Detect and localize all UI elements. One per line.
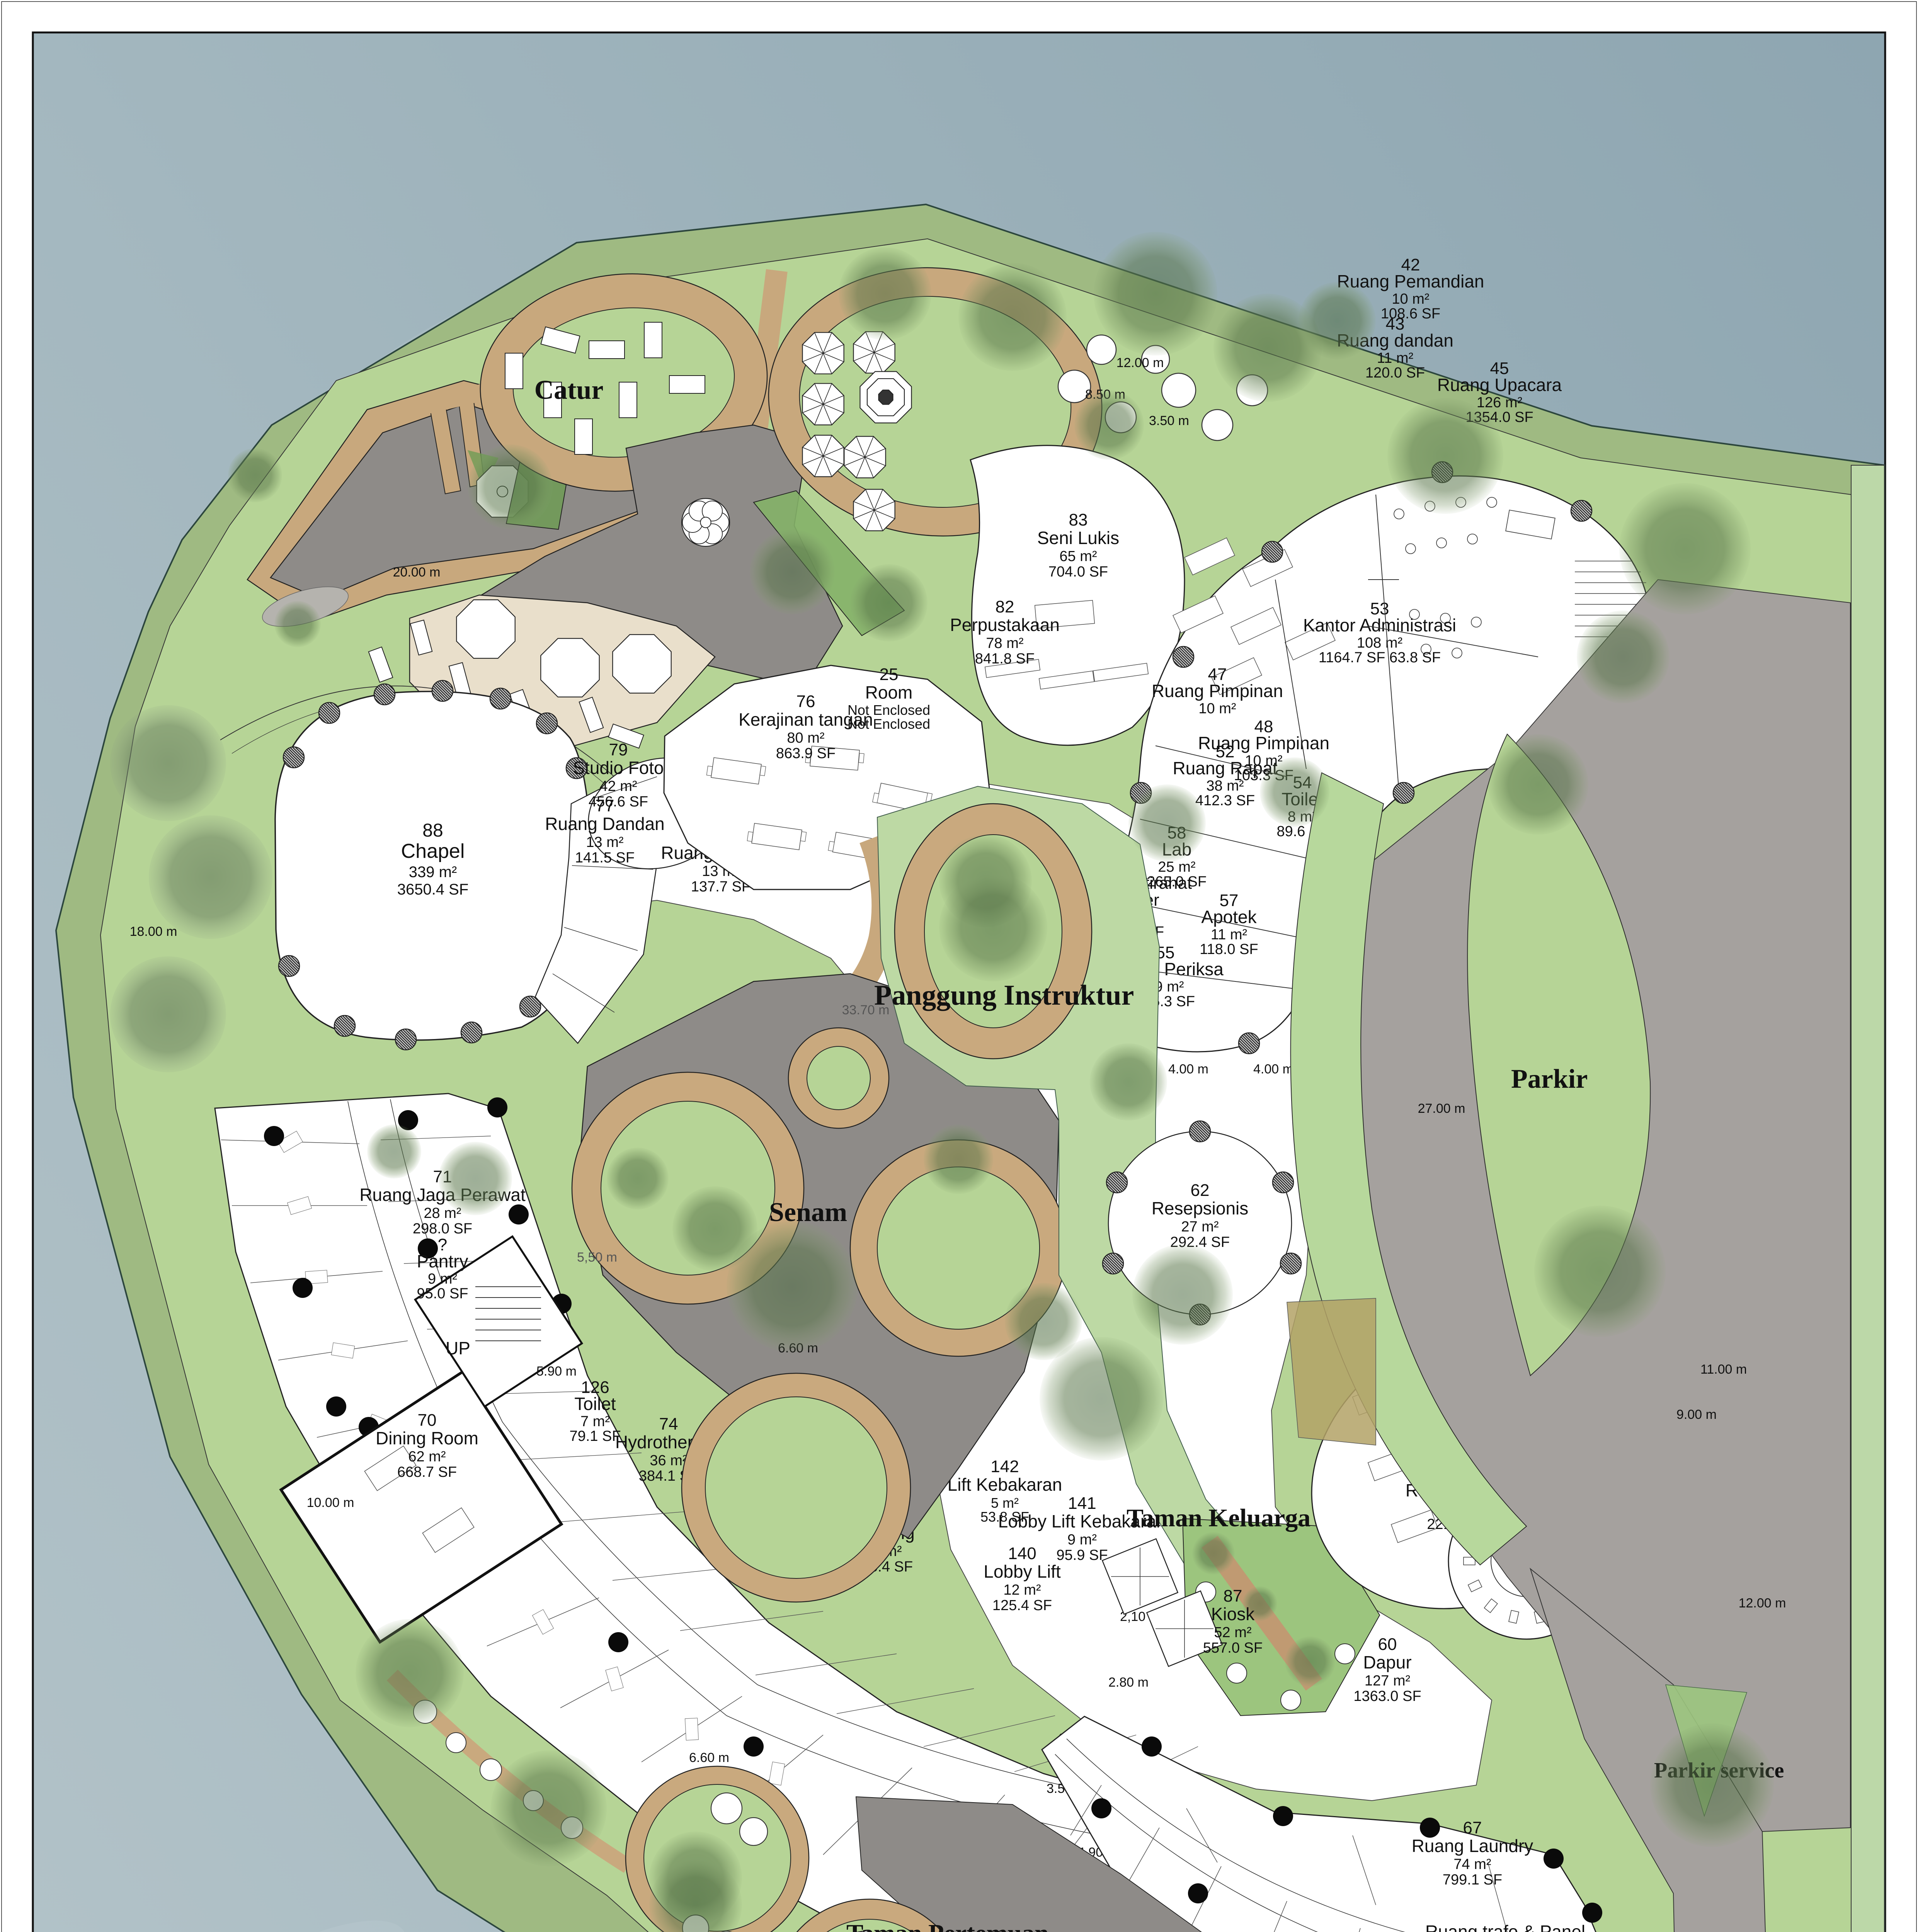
svg-text:Apotek: Apotek bbox=[1201, 907, 1257, 927]
svg-text:Kantor Administrasi: Kantor Administrasi bbox=[1303, 615, 1456, 635]
svg-text:Resepsionis: Resepsionis bbox=[1152, 1198, 1249, 1218]
svg-text:Ruang Rapat: Ruang Rapat bbox=[1173, 758, 1277, 778]
svg-text:2.80 m: 2.80 m bbox=[1108, 1675, 1149, 1690]
svg-text:11.00 m: 11.00 m bbox=[1700, 1362, 1747, 1377]
svg-text:88: 88 bbox=[422, 820, 443, 841]
svg-text:298.0 SF: 298.0 SF bbox=[413, 1221, 472, 1237]
svg-text:Ruang Dandan: Ruang Dandan bbox=[545, 814, 664, 834]
svg-text:65 m²: 65 m² bbox=[1059, 548, 1097, 565]
svg-text:27 m²: 27 m² bbox=[1181, 1219, 1219, 1235]
svg-text:9 m²: 9 m² bbox=[1067, 1532, 1097, 1548]
svg-text:12 m²: 12 m² bbox=[1003, 1582, 1041, 1598]
svg-text:Ruang Laundry: Ruang Laundry bbox=[1412, 1836, 1533, 1856]
svg-text:412.3 SF: 412.3 SF bbox=[1195, 793, 1255, 809]
svg-text:83: 83 bbox=[1069, 510, 1088, 529]
svg-text:668.7 SF: 668.7 SF bbox=[397, 1464, 457, 1480]
svg-text:10 m²: 10 m² bbox=[1198, 701, 1236, 717]
svg-text:Lift Kebakaran: Lift Kebakaran bbox=[948, 1475, 1062, 1495]
svg-text:42 m²: 42 m² bbox=[599, 778, 637, 794]
svg-text:79: 79 bbox=[609, 740, 628, 759]
svg-text:18.00 m: 18.00 m bbox=[130, 924, 177, 939]
svg-text:Dapur: Dapur bbox=[1363, 1652, 1411, 1672]
svg-text:87: 87 bbox=[1224, 1587, 1242, 1605]
svg-text:Ruang Pimpinan: Ruang Pimpinan bbox=[1152, 681, 1283, 701]
svg-text:Kiosk: Kiosk bbox=[1211, 1604, 1255, 1624]
svg-text:74 m²: 74 m² bbox=[1453, 1856, 1491, 1872]
svg-text:12.00 m: 12.00 m bbox=[1116, 355, 1164, 370]
svg-text:Lobby Lift: Lobby Lift bbox=[984, 1561, 1061, 1582]
svg-text:125.4 SF: 125.4 SF bbox=[992, 1597, 1052, 1614]
svg-text:13 m²: 13 m² bbox=[586, 834, 623, 850]
svg-text:38 m²: 38 m² bbox=[1206, 778, 1244, 794]
svg-text:11 m²: 11 m² bbox=[1377, 350, 1413, 366]
svg-text:9 m²: 9 m² bbox=[428, 1271, 457, 1287]
svg-text:52 m²: 52 m² bbox=[1214, 1624, 1251, 1641]
svg-text:67: 67 bbox=[1463, 1818, 1482, 1837]
svg-text:7 m²: 7 m² bbox=[580, 1413, 610, 1430]
svg-text:25: 25 bbox=[880, 665, 899, 684]
svg-text:62: 62 bbox=[1191, 1181, 1210, 1200]
svg-text:Perpustakaan: Perpustakaan bbox=[950, 615, 1060, 635]
svg-text:108 m²: 108 m² bbox=[1357, 635, 1402, 651]
svg-text:10.00 m: 10.00 m bbox=[307, 1495, 354, 1510]
svg-text:95.0 SF: 95.0 SF bbox=[417, 1286, 468, 1302]
svg-text:Ruang Pemandian: Ruang Pemandian bbox=[1337, 271, 1484, 291]
svg-text:6.60 m: 6.60 m bbox=[689, 1750, 729, 1765]
svg-text:3650.4 SF: 3650.4 SF bbox=[397, 881, 469, 898]
svg-text:Not Enclosed: Not Enclosed bbox=[848, 716, 930, 732]
svg-text:Ruang Upacara: Ruang Upacara bbox=[1437, 375, 1562, 395]
svg-text:841.8 SF: 841.8 SF bbox=[975, 651, 1035, 667]
svg-text:Studio Foto: Studio Foto bbox=[573, 758, 664, 778]
svg-text:9.00 m: 9.00 m bbox=[1676, 1407, 1717, 1422]
svg-text:142: 142 bbox=[990, 1457, 1019, 1476]
svg-text:557.0 SF: 557.0 SF bbox=[1203, 1640, 1263, 1656]
svg-text:Pantry: Pantry bbox=[417, 1251, 468, 1271]
svg-text:27.00 m: 27.00 m bbox=[1418, 1101, 1465, 1116]
svg-text:799.1 SF: 799.1 SF bbox=[1443, 1872, 1502, 1888]
svg-text:863.9 SF: 863.9 SF bbox=[776, 745, 836, 762]
svg-text:Room: Room bbox=[865, 682, 913, 702]
svg-text:339 m²: 339 m² bbox=[409, 864, 457, 881]
svg-text:70: 70 bbox=[418, 1411, 437, 1430]
svg-text:140: 140 bbox=[1008, 1544, 1036, 1563]
svg-text:127 m²: 127 m² bbox=[1365, 1673, 1410, 1689]
svg-text:1164.7 SF 63.8 SF: 1164.7 SF 63.8 SF bbox=[1319, 650, 1441, 666]
svg-text:Catur: Catur bbox=[534, 375, 604, 405]
svg-text:Taman Keluarga: Taman Keluarga bbox=[1127, 1504, 1310, 1532]
svg-text:Not Enclosed: Not Enclosed bbox=[848, 702, 930, 718]
svg-text:4.00 m: 4.00 m bbox=[1168, 1062, 1208, 1077]
svg-text:Parkir: Parkir bbox=[1511, 1064, 1588, 1094]
svg-text:Ruang trafo & Panel: Ruang trafo & Panel bbox=[1425, 1922, 1585, 1932]
svg-text:36 m²: 36 m² bbox=[650, 1452, 687, 1469]
svg-text:126 m²: 126 m² bbox=[1477, 395, 1522, 411]
svg-text:76: 76 bbox=[796, 692, 815, 711]
svg-text:141.5 SF: 141.5 SF bbox=[575, 850, 635, 866]
svg-text:Chapel: Chapel bbox=[401, 840, 465, 862]
svg-text:80 m²: 80 m² bbox=[787, 730, 824, 746]
svg-text:118.0 SF: 118.0 SF bbox=[1200, 941, 1258, 957]
svg-text:79.1 SF: 79.1 SF bbox=[569, 1428, 621, 1444]
svg-text:74: 74 bbox=[659, 1415, 678, 1434]
svg-text:12.00 m: 12.00 m bbox=[1739, 1596, 1786, 1611]
svg-text:11 m²: 11 m² bbox=[1211, 927, 1247, 943]
svg-text:95.9 SF: 95.9 SF bbox=[1056, 1547, 1108, 1563]
svg-text:Toilet: Toilet bbox=[574, 1394, 616, 1414]
svg-text:5 m²: 5 m² bbox=[991, 1495, 1019, 1511]
svg-text:20.00 m: 20.00 m bbox=[393, 565, 441, 580]
svg-text:141: 141 bbox=[1068, 1494, 1096, 1513]
svg-text:77: 77 bbox=[596, 796, 614, 815]
svg-text:5.90 m: 5.90 m bbox=[536, 1364, 577, 1379]
svg-text:704.0 SF: 704.0 SF bbox=[1048, 564, 1108, 580]
svg-text:60: 60 bbox=[1378, 1635, 1397, 1654]
svg-text:62 m²: 62 m² bbox=[408, 1449, 446, 1465]
svg-text:4.00 m: 4.00 m bbox=[1253, 1062, 1293, 1077]
svg-text:Taman Pertemuan: Taman Pertemuan bbox=[846, 1919, 1049, 1932]
svg-text:3.50 m: 3.50 m bbox=[1149, 413, 1189, 428]
svg-text:Panggung Instruktur: Panggung Instruktur bbox=[874, 980, 1134, 1011]
svg-text:5,50 m: 5,50 m bbox=[577, 1250, 617, 1265]
svg-text:Dining Room: Dining Room bbox=[376, 1428, 478, 1448]
svg-text:1363.0 SF: 1363.0 SF bbox=[1353, 1688, 1421, 1704]
svg-text:120.0 SF: 120.0 SF bbox=[1365, 365, 1425, 381]
svg-text:10 m²: 10 m² bbox=[1392, 291, 1429, 307]
svg-text:82: 82 bbox=[996, 597, 1014, 616]
svg-text:78 m²: 78 m² bbox=[986, 635, 1023, 651]
svg-text:UP: UP bbox=[446, 1338, 470, 1358]
svg-text:Seni Lukis: Seni Lukis bbox=[1037, 528, 1119, 548]
